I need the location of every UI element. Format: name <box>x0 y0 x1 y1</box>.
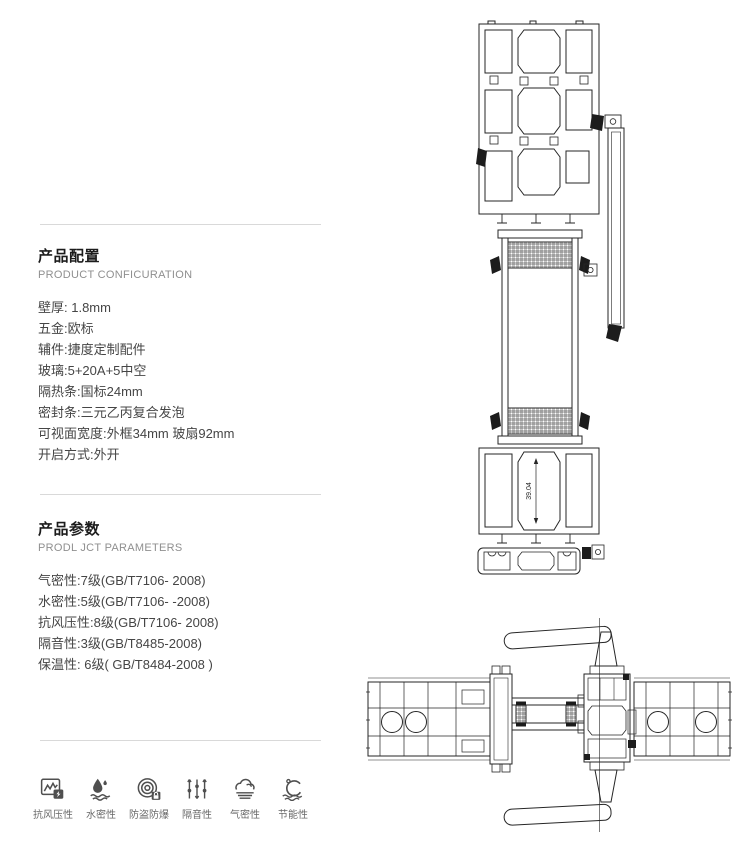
product-params-section: 产品参数 PRODL JCT PARAMETERS 气密性:7级(GB/T710… <box>38 518 219 675</box>
air-tightness-icon <box>232 777 258 801</box>
feature-burglar-proof: 防盗防爆 <box>125 777 173 821</box>
feature-label: 隔音性 <box>182 806 212 821</box>
product-spec-page: 产品配置 PRODUCT CONFICURATION 壁厚: 1.8mm 五金:… <box>0 0 740 847</box>
spec-line: 辅件:捷度定制配件 <box>38 339 234 360</box>
spec-line: 开启方式:外开 <box>38 444 234 465</box>
spec-line: 抗风压性:8级(GB/T7106- 2008) <box>38 612 219 633</box>
window-handle-top <box>504 626 617 666</box>
feature-air-tightness: 气密性 <box>221 777 269 821</box>
feature-label: 防盗防爆 <box>129 806 169 821</box>
window-profile-horizontal-section-drawing <box>366 616 732 839</box>
spec-line: 水密性:5级(GB/T7106- -2008) <box>38 591 219 612</box>
product-params-subtitle: PRODL JCT PARAMETERS <box>38 542 219 554</box>
divider <box>40 740 321 741</box>
feature-label: 节能性 <box>278 806 308 821</box>
feature-sound-insulation: 隔音性 <box>173 777 221 821</box>
product-config-section: 产品配置 PRODUCT CONFICURATION 壁厚: 1.8mm 五金:… <box>38 245 234 465</box>
wind-pressure-icon <box>40 777 66 801</box>
product-params-title: 产品参数 <box>38 518 219 539</box>
product-config-subtitle: PRODUCT CONFICURATION <box>38 269 234 281</box>
sound-insulation-icon <box>184 777 210 801</box>
spec-line: 气密性:7级(GB/T7106- 2008) <box>38 570 219 591</box>
spec-line: 密封条:三元乙丙复合发泡 <box>38 402 234 423</box>
feature-icons-row: 抗风压性 水密性 <box>29 777 317 821</box>
feature-water-tightness: 水密性 <box>77 777 125 821</box>
divider <box>40 224 321 225</box>
divider <box>40 494 321 495</box>
spec-line: 隔音性:3级(GB/T8485-2008) <box>38 633 219 654</box>
feature-label: 气密性 <box>230 806 260 821</box>
spec-line: 玻璃:5+20A+5中空 <box>38 360 234 381</box>
spec-line: 可视面宽度:外框34mm 玻扇92mm <box>38 423 234 444</box>
energy-saving-icon <box>280 777 306 801</box>
spec-line: 隔热条:国标24mm <box>38 381 234 402</box>
spec-line: 壁厚: 1.8mm <box>38 297 234 318</box>
feature-label: 抗风压性 <box>33 806 73 821</box>
window-profile-vertical-section-drawing: 39.04 <box>472 18 632 583</box>
product-config-list: 壁厚: 1.8mm 五金:欧标 辅件:捷度定制配件 玻璃:5+20A+5中空 隔… <box>38 297 234 465</box>
feature-label: 水密性 <box>86 806 116 821</box>
feature-energy-saving: 节能性 <box>269 777 317 821</box>
spec-line: 五金:欧标 <box>38 318 234 339</box>
burglar-proof-icon <box>136 777 162 801</box>
product-config-title: 产品配置 <box>38 245 234 266</box>
spec-line: 保温性: 6级( GB/T8484-2008 ) <box>38 654 219 675</box>
product-params-list: 气密性:7级(GB/T7106- 2008) 水密性:5级(GB/T7106- … <box>38 570 219 675</box>
window-handle-bottom <box>504 770 617 826</box>
water-tightness-icon <box>88 777 114 801</box>
feature-wind-pressure: 抗风压性 <box>29 777 77 821</box>
section-dimension-label: 39.04 <box>526 482 533 500</box>
